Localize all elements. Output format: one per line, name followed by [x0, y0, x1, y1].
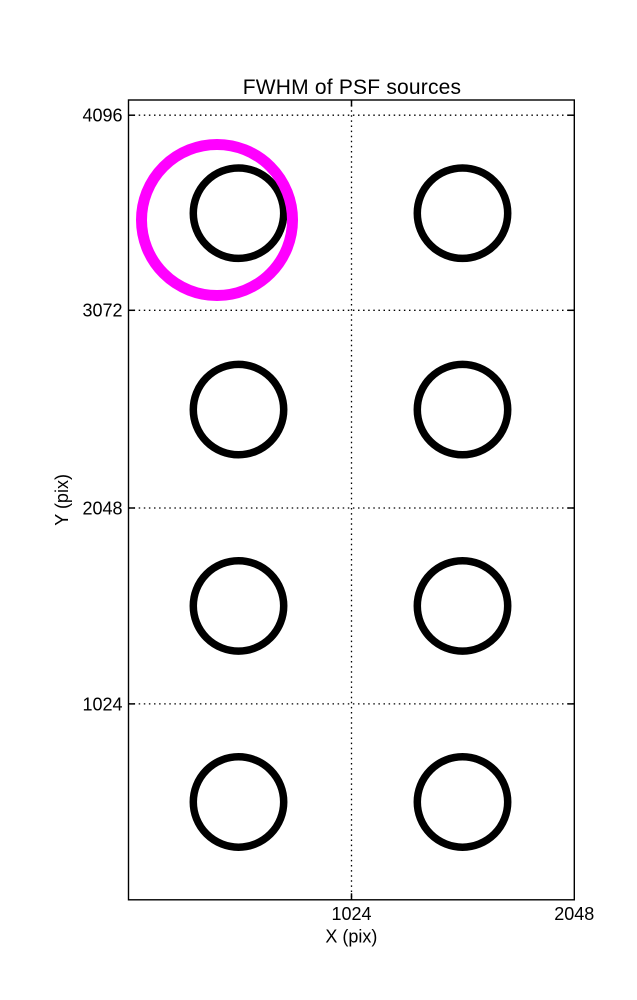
svg-text:X (pix): X (pix) [325, 927, 377, 947]
svg-text:FWHM of PSF sources: FWHM of PSF sources [243, 76, 462, 99]
svg-text:4096: 4096 [82, 106, 122, 126]
svg-text:2048: 2048 [554, 904, 594, 924]
svg-text:1024: 1024 [331, 904, 371, 924]
svg-text:2048: 2048 [82, 498, 122, 518]
svg-text:Y (pix): Y (pix) [52, 474, 72, 526]
svg-text:1024: 1024 [82, 694, 122, 714]
svg-text:3072: 3072 [82, 301, 122, 321]
